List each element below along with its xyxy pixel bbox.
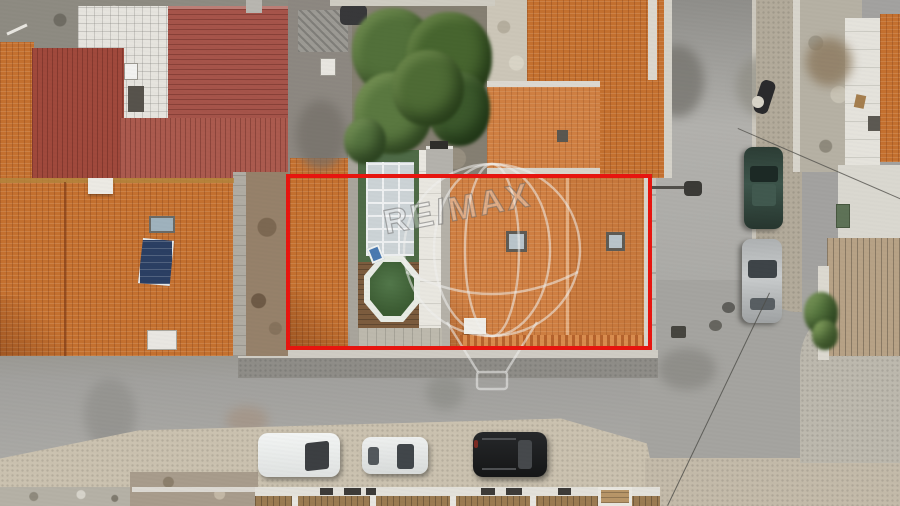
aerial-photo: RE/MAX [0,0,900,506]
property-outline [286,174,652,350]
